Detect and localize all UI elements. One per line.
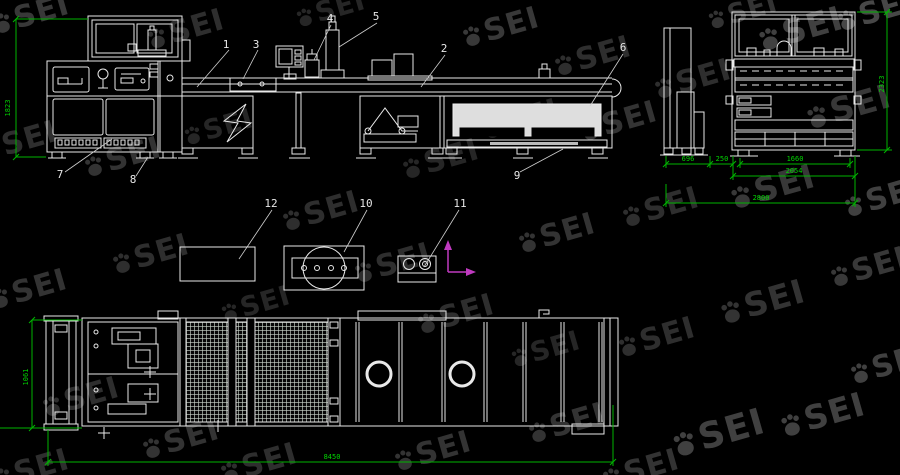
- detail-item-11: [398, 256, 436, 282]
- coordinate-axes: [444, 240, 476, 276]
- detail-item-10: [284, 246, 364, 290]
- plan-panel-section: [356, 310, 610, 434]
- callout-1: 1: [223, 38, 230, 51]
- axis-arrow-right: [466, 268, 476, 276]
- plan-mesh-frame: [186, 318, 340, 426]
- plan-infeed-frame: [44, 316, 78, 430]
- plan-divider-wall: [158, 311, 186, 426]
- dim-label-side-height: 1823: [4, 100, 12, 117]
- callout-8: 8: [130, 173, 137, 186]
- dim-label-end-left: 696: [682, 155, 695, 163]
- callout-9: 9: [514, 169, 521, 182]
- dim-label-end-overall: 2800: [753, 194, 770, 202]
- side-view: [47, 16, 621, 158]
- dim-label-end-inner: 1660: [787, 155, 804, 163]
- side-view-enclosure: [88, 16, 190, 61]
- dim-label-end-gap: 250: [716, 155, 729, 163]
- dim-label-end-body: 2054: [786, 167, 803, 175]
- side-view-cylinder: [321, 16, 344, 78]
- callout-3: 3: [253, 38, 260, 51]
- side-view-cabinet: [47, 61, 160, 158]
- callout-12: 12: [264, 197, 277, 210]
- plan-left-section: [88, 322, 178, 422]
- detail-items: [180, 246, 436, 290]
- plan-view: [44, 310, 618, 439]
- end-view: [660, 12, 861, 156]
- dim-label-plan-length: 8450: [324, 453, 341, 461]
- dim-plan-width: [0, 317, 82, 431]
- callout-2: 2: [441, 42, 448, 55]
- callout-11: 11: [453, 197, 466, 210]
- side-view-scissor-unit: [356, 96, 448, 158]
- axis-arrow-up: [444, 240, 452, 250]
- side-view-zigzag-unit: [178, 96, 258, 158]
- callout-10: 10: [359, 197, 372, 210]
- dim-end-height: [857, 9, 892, 153]
- plan-body-outline: [82, 318, 618, 426]
- callout-7: 7: [57, 168, 64, 181]
- dim-label-end-height: 2323: [878, 76, 886, 93]
- end-view-side-tower: [660, 28, 708, 155]
- dim-label-plan-width: 1061: [22, 369, 30, 386]
- callout-5: 5: [373, 10, 380, 23]
- side-view-column: [158, 61, 182, 158]
- cad-canvas: SEISEISEISEISEISEISEISEISEISEISEISEISEIS…: [0, 0, 900, 475]
- callout-6: 6: [620, 41, 627, 54]
- engineering-drawing: 1823 696 250 1660 2054 2800 2323 1061 84…: [0, 0, 900, 475]
- callout-4: 4: [327, 12, 334, 25]
- side-view-monitor: [276, 46, 303, 79]
- side-view-outfeed: [440, 96, 612, 158]
- end-view-main-body: [726, 12, 861, 156]
- side-view-blocks: [368, 54, 550, 80]
- plan-datum-marks: [98, 420, 224, 439]
